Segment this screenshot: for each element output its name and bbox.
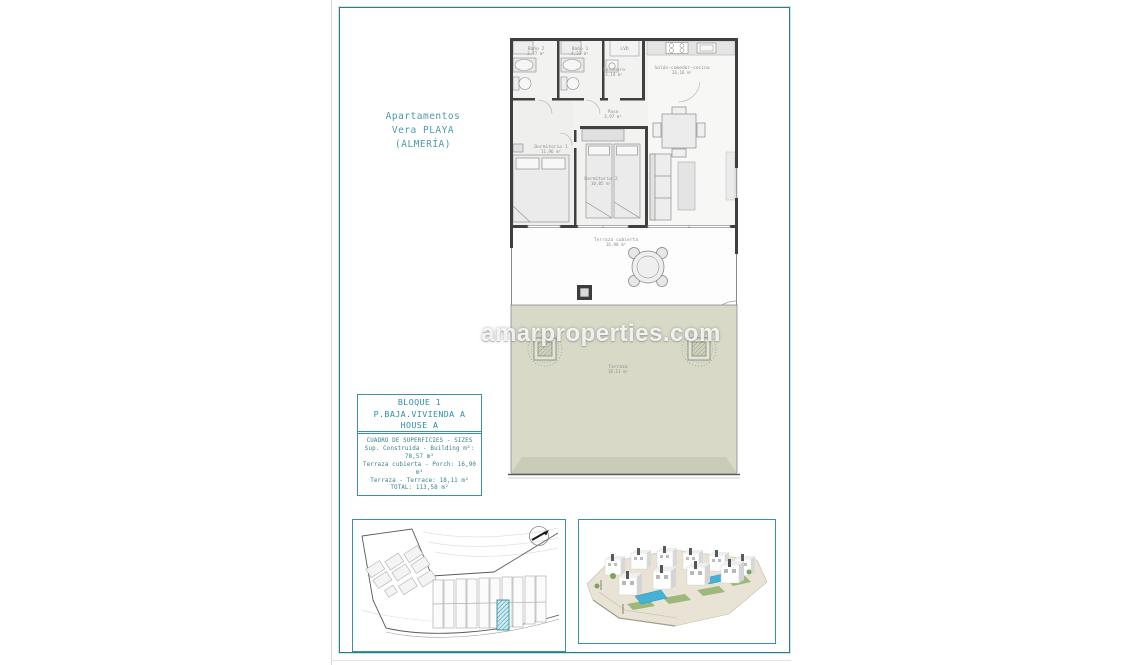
svg-text:3,77 m²: 3,77 m² <box>527 51 545 56</box>
siteplan-box <box>352 519 566 652</box>
wardrobe <box>582 129 624 141</box>
surfaces-row: TOTAL: 113,58 m² <box>358 485 481 493</box>
render-3d-view <box>579 520 775 643</box>
highlighted-unit-marker <box>497 600 509 630</box>
building-cluster-nw <box>366 539 438 608</box>
svg-text:3,14 m²: 3,14 m² <box>605 72 623 77</box>
toilet-icon <box>567 78 579 90</box>
surfaces-table: CUADRO DE SUPERFICIES - SIZES Sup. Const… <box>357 431 482 496</box>
surfaces-row: Sup. Construida - Building m²: 78,57 m² <box>358 446 481 462</box>
unit-label-line2: P.BAJA.VIVIENDA A <box>358 409 481 421</box>
svg-text:11,96 m²: 11,96 m² <box>541 149 561 154</box>
side-furniture <box>726 152 735 200</box>
lvd-label: LVD <box>620 46 629 52</box>
unit-label-box: BLOQUE 1 P.BAJA.VIVIENDA A HOUSE A <box>357 394 482 434</box>
surfaces-title: CUADRO DE SUPERFICIES - SIZES <box>358 438 481 446</box>
terrace-bevel-edge <box>511 457 737 473</box>
svg-text:3,97 m²: 3,97 m² <box>604 114 622 119</box>
project-title-line1: Apartamentos <box>356 110 490 124</box>
terrace-round-table <box>629 248 668 287</box>
plan-sheet: Apartamentos Vera PLAYA (ALMERÍA) <box>0 0 1130 665</box>
svg-text:10,05 m²: 10,05 m² <box>591 181 611 186</box>
svg-text:4,23 m²: 4,23 m² <box>571 51 589 56</box>
unit-label-line1: BLOQUE 1 <box>358 397 481 409</box>
svg-text:18,11 m²: 18,11 m² <box>608 369 628 374</box>
bed-double <box>513 144 569 222</box>
project-title-line2: Vera PLAYA <box>356 124 490 138</box>
page-bottom-edge-line <box>331 660 791 661</box>
svg-text:16,90 m²: 16,90 m² <box>606 242 626 247</box>
north-arrow-icon <box>530 527 550 546</box>
row-houses <box>433 576 546 628</box>
project-title: Apartamentos Vera PLAYA (ALMERÍA) <box>356 110 490 152</box>
floorplan-drawing: Baño 2 3,77 m² Baño 1 4,23 m² LVD Lavade… <box>500 30 745 485</box>
washbasin-icon <box>563 60 581 71</box>
project-title-line3: (ALMERÍA) <box>356 138 490 152</box>
hob-icon <box>666 43 688 54</box>
kitchen-counter <box>647 41 735 55</box>
unit-label-line3: HOUSE A <box>358 420 481 432</box>
tv-cabinet <box>678 162 695 210</box>
terrace-planter-box <box>577 285 592 300</box>
page-edge-line <box>331 0 332 665</box>
sofa <box>650 154 671 220</box>
toilet-icon <box>519 78 531 90</box>
svg-text:26,16 m²: 26,16 m² <box>672 70 692 75</box>
watermark: amarproperties.com <box>476 320 726 348</box>
siteplan-drawing <box>353 520 565 651</box>
render-box <box>578 519 776 644</box>
washbasin-icon <box>515 60 533 71</box>
surfaces-row: Terraza cubierta - Porch: 16,90 m² <box>358 462 481 478</box>
